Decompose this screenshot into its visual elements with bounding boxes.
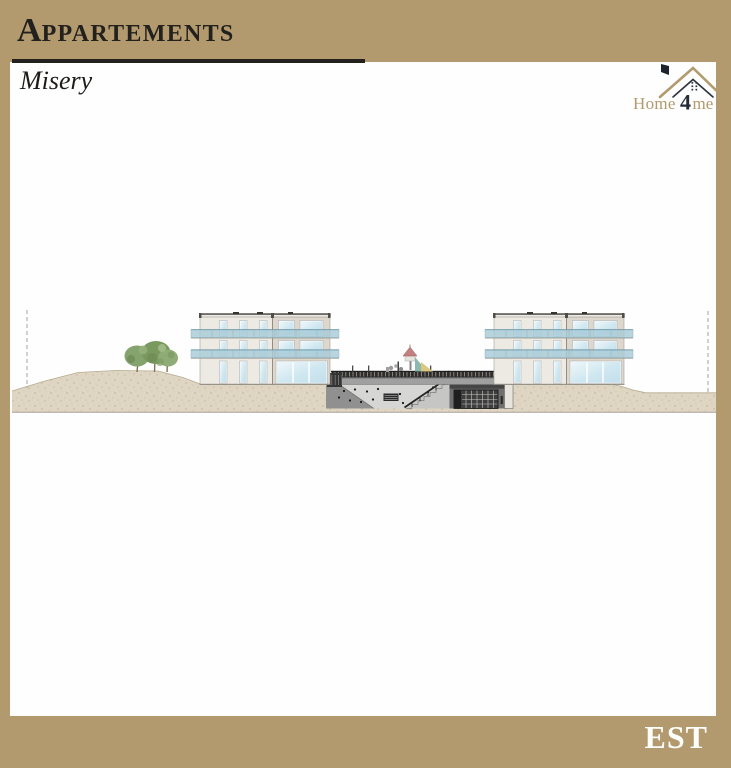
brand-text-post: me [693, 94, 714, 113]
garage-entrance [450, 384, 507, 408]
chimney-flag-icon [661, 64, 669, 75]
title-underline [12, 59, 365, 63]
building-right [485, 312, 633, 385]
page-title-initial: A [17, 12, 42, 49]
orientation-label: EST [645, 719, 708, 756]
brand-wordmark: Home 4 me [633, 90, 713, 115]
brand-text-pre: Home [633, 94, 676, 113]
bench [384, 394, 399, 402]
frame: { "header": { "title_initial": "A", "tit… [0, 0, 731, 768]
house-roof-icon [660, 64, 722, 97]
page-title-rest: ppartements [42, 21, 235, 47]
elevation-drawing [10, 300, 716, 416]
playground-tower-roof [403, 347, 417, 356]
project-subtitle: Misery [20, 66, 92, 96]
support-pillar [505, 384, 514, 408]
brand-text-num: 4 [680, 90, 691, 115]
page-title: Appartements [17, 12, 235, 50]
tree-group [125, 341, 179, 372]
building-left [191, 312, 339, 385]
brand-logo: Home 4 me [630, 60, 722, 114]
playground [386, 345, 433, 373]
window-dots-icon [692, 82, 698, 91]
bollard [501, 396, 503, 404]
